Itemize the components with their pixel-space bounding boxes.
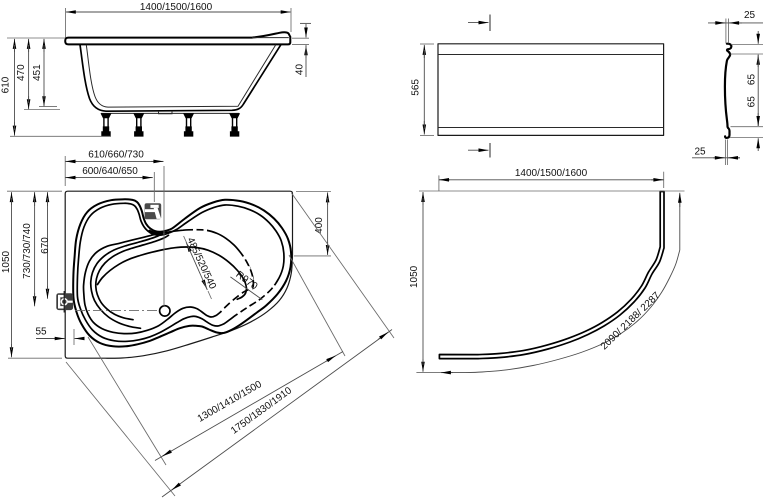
svg-text:670: 670 — [40, 237, 51, 254]
svg-text:600/640/650: 600/640/650 — [82, 166, 138, 177]
svg-text:730/730/740: 730/730/740 — [22, 223, 33, 279]
svg-text:25: 25 — [695, 147, 707, 158]
svg-text:1400/1500/1600: 1400/1500/1600 — [140, 2, 213, 13]
svg-text:470: 470 — [16, 64, 27, 81]
svg-text:65: 65 — [747, 74, 758, 86]
svg-text:610/660/730: 610/660/730 — [88, 150, 144, 161]
svg-text:565: 565 — [411, 79, 422, 96]
svg-text:55: 55 — [35, 327, 47, 338]
svg-text:451: 451 — [32, 64, 43, 81]
svg-text:1050: 1050 — [1, 250, 12, 273]
svg-text:400: 400 — [314, 217, 325, 234]
svg-text:25: 25 — [744, 10, 756, 21]
svg-text:40: 40 — [295, 64, 306, 76]
svg-text:65: 65 — [747, 96, 758, 108]
svg-text:1050: 1050 — [409, 265, 420, 288]
svg-text:1400/1500/1600: 1400/1500/1600 — [515, 168, 588, 179]
svg-text:610: 610 — [1, 76, 12, 93]
